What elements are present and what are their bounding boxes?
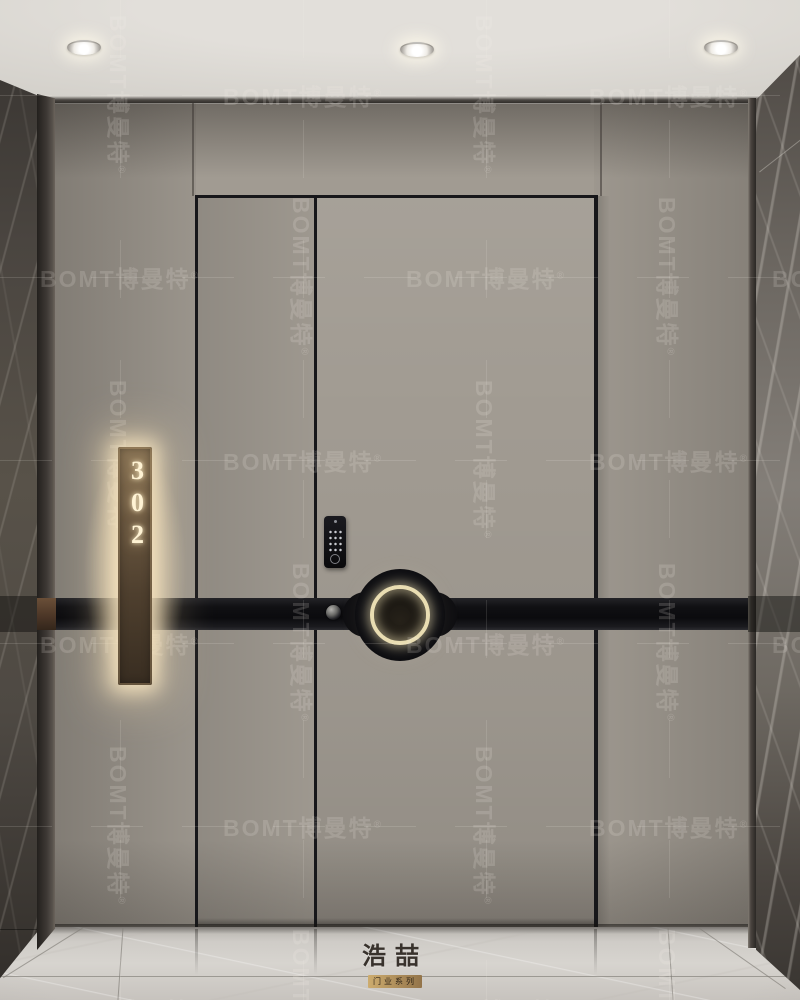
downlight-icon [704,40,738,55]
corner-trim-left [37,94,55,950]
floor-reflection-frame-right [594,929,597,975]
marble-wall-right [756,55,800,990]
floor-reflection-divider [314,929,317,975]
studio-logo: 浩喆 门业系列 [320,936,470,989]
logo-main-text: 浩喆 [320,936,470,971]
corner-trim-right [748,98,756,948]
room-sign-plaque: 302 [118,447,152,685]
wall-seam-left [192,103,194,196]
band-shadow-left-marble [0,596,37,632]
downlight-icon [400,42,434,57]
keyhole[interactable] [326,605,341,620]
black-band-trim-segment [37,598,56,630]
downlight-icon [67,40,101,55]
entry-door-scene: 302 浩喆 门业系列 BOMT博曼特®BOMT博曼特®BOMT博曼特®BOMT… [0,0,800,1000]
marble-left-slab-seam [0,929,37,930]
smart-lock-keypad[interactable] [324,516,346,568]
room-number: 302 [118,456,152,552]
door-leaf [317,198,594,925]
logo-sub-text: 门业系列 [368,975,422,988]
door-recess-shadow [598,196,610,927]
wall-right-shade [594,103,748,927]
door-frame-top [195,195,598,198]
floor-reflection-frame-left [195,929,198,975]
door-side-panel [198,198,314,925]
keypad-buttons[interactable] [328,529,343,552]
door-frame-right [594,195,598,927]
ceiling-wall-junction [0,96,800,103]
floor-wall-junction [0,924,800,934]
door-divider [314,197,317,927]
band-shadow-right-marble [748,596,800,632]
marble-wall-left [0,80,37,980]
wall-seam-right [600,103,602,196]
ring-handle[interactable] [370,585,430,645]
